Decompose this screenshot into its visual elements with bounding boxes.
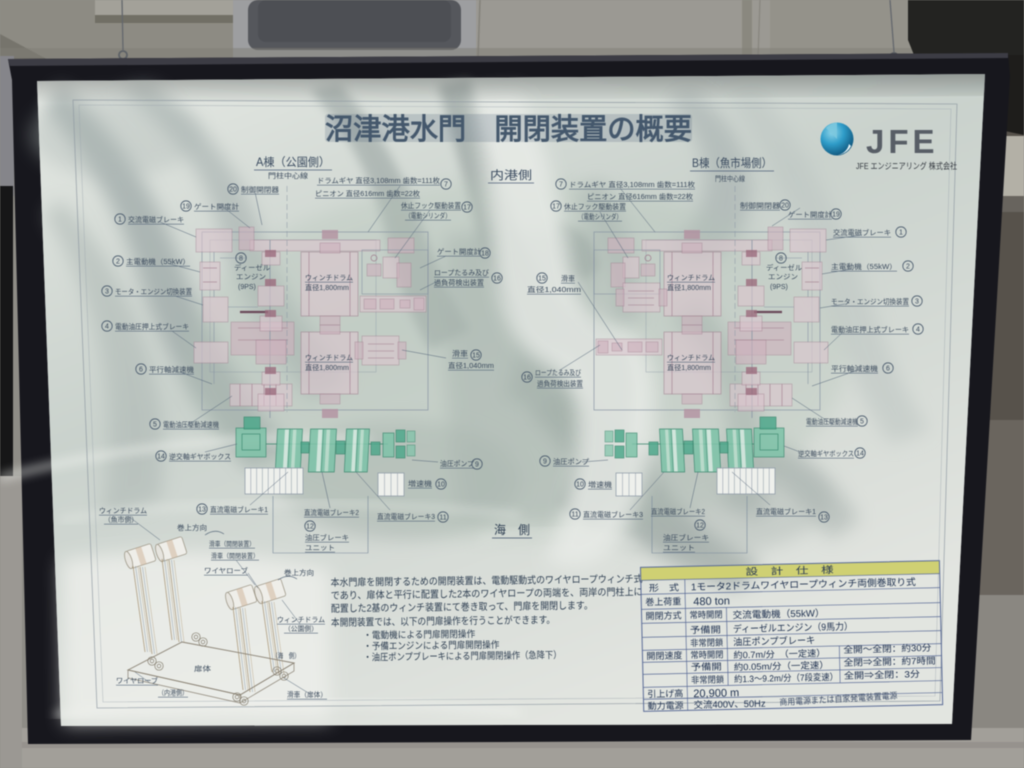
svg-text:2: 2: [906, 264, 910, 271]
svg-text:JFE エンジニアリング 株式会社: JFE エンジニアリング 株式会社: [856, 161, 957, 171]
svg-text:油圧ポンプ: 油圧ポンプ: [553, 457, 589, 466]
svg-text:交流電磁ブレーキ: 交流電磁ブレーキ: [128, 215, 184, 224]
svg-text:油圧ポンプ: 油圧ポンプ: [440, 459, 474, 468]
svg-text:ドラムギヤ 直径3,108mm 歯数=111枚: ドラムギヤ 直径3,108mm 歯数=111枚: [317, 176, 440, 185]
svg-text:ディーゼル: ディーゼル: [234, 263, 270, 272]
svg-text:6: 6: [139, 367, 143, 374]
svg-text:開閉速度: 開閉速度: [646, 649, 682, 661]
svg-text:巻上荷重: 巻上荷重: [645, 595, 681, 607]
svg-text:ユニット: ユニット: [663, 545, 695, 552]
svg-text:JFE: JFE: [866, 123, 939, 160]
svg-text:ディーゼル: ディーゼル: [766, 263, 802, 272]
svg-text:設 計 仕 様: 設 計 仕 様: [745, 564, 834, 578]
svg-text:形 式: 形 式: [649, 582, 679, 594]
svg-text:油圧ブレーキ: 油圧ブレーキ: [305, 533, 349, 542]
svg-text:15: 15: [472, 353, 480, 360]
svg-text:直流電磁ブレーキ3: 直流電磁ブレーキ3: [583, 510, 643, 519]
svg-text:ウィンチドラム: ウィンチドラム: [305, 274, 353, 282]
svg-text:滑車: 滑車: [452, 349, 468, 358]
svg-text:直径1,040mm: 直径1,040mm: [527, 285, 581, 294]
svg-text:予備開: 予備開: [691, 661, 722, 673]
svg-text:平行軸減速機: 平行軸減速機: [831, 364, 878, 373]
svg-text:非常閉鎖: 非常閉鎖: [691, 674, 724, 686]
svg-text:19: 19: [182, 204, 190, 211]
svg-text:開閉方式: 開閉方式: [645, 609, 681, 621]
svg-text:A棟（公園側）: A棟（公園側）: [256, 155, 330, 169]
svg-text:制御開閉器: 制御開閉器: [241, 185, 279, 194]
svg-text:制御開閉器: 制御開閉器: [740, 201, 780, 210]
svg-text:4: 4: [105, 324, 109, 331]
svg-text:増速機: 増速機: [588, 480, 612, 489]
svg-text:（電動シリンダ）: （電動シリンダ）: [578, 212, 622, 221]
svg-text:15: 15: [538, 276, 546, 283]
svg-text:直流電磁ブレーキ2: 直流電磁ブレーキ2: [304, 508, 359, 517]
svg-text:（公園側）: （公園側）: [284, 624, 318, 633]
svg-text:直流電磁ブレーキ1: 直流電磁ブレーキ1: [210, 505, 268, 514]
svg-text:ドラムギヤ 直径3,108mm 歯数=111枚: ドラムギヤ 直径3,108mm 歯数=111枚: [569, 180, 695, 189]
svg-text:ロープたるみ及び: ロープたるみ及び: [535, 369, 581, 377]
svg-text:3: 3: [915, 299, 919, 306]
svg-text:（内港側）: （内港側）: [158, 688, 188, 697]
svg-text:予備開: 予備開: [690, 624, 721, 636]
svg-text:20: 20: [229, 187, 237, 194]
svg-text:門柱中心線: 門柱中心線: [715, 174, 745, 183]
svg-text:16: 16: [523, 375, 531, 382]
svg-text:休止フック駆動装置: 休止フック駆動装置: [401, 201, 461, 210]
svg-text:14: 14: [856, 451, 864, 458]
svg-text:10: 10: [576, 482, 584, 489]
svg-text:主電動機（55kW）: 主電動機（55kW）: [126, 257, 190, 266]
svg-text:ウィンチドラム: ウィンチドラム: [99, 507, 147, 515]
svg-text:交流電動機（55kW）: 交流電動機（55kW）: [732, 607, 824, 621]
svg-text:内港側: 内港側: [490, 168, 532, 182]
svg-text:休止フック駆動装置: 休止フック駆動装置: [564, 202, 626, 211]
svg-text:12: 12: [696, 523, 704, 530]
svg-text:13: 13: [820, 515, 828, 522]
svg-text:過負荷検出装置: 過負荷検出装置: [537, 379, 583, 388]
svg-text:4: 4: [916, 327, 920, 334]
svg-text:5: 5: [153, 422, 157, 429]
svg-text:モータ・エンジン切換装置: モータ・エンジン切換装置: [831, 297, 909, 306]
svg-text:(9PS): (9PS): [770, 284, 788, 291]
svg-text:ゲート開度計: ゲート開度計: [437, 247, 481, 256]
svg-text:18: 18: [481, 251, 489, 258]
svg-text:ウィンチドラム: ウィンチドラム: [305, 354, 353, 362]
svg-text:全閉⇒全開：約7時間: 全閉⇒全開：約7時間: [844, 655, 936, 668]
svg-text:交流電磁ブレーキ: 交流電磁ブレーキ: [833, 228, 891, 237]
svg-text:逆交軸ギヤボックス: 逆交軸ギヤボックス: [798, 449, 854, 458]
svg-text:（海 側）: （海 側）: [272, 651, 300, 660]
svg-text:ウィンチドラム: ウィンチドラム: [277, 616, 325, 624]
svg-text:12: 12: [306, 524, 314, 531]
svg-text:直径1,800mm: 直径1,800mm: [667, 283, 711, 292]
svg-text:門柱中心線: 門柱中心線: [268, 171, 308, 180]
svg-text:海 側: 海 側: [494, 522, 530, 537]
svg-text:9: 9: [543, 459, 547, 466]
svg-text:巻上方向: 巻上方向: [284, 568, 314, 577]
svg-text:全開～全閉：約30分: 全開～全閉：約30分: [843, 642, 931, 655]
svg-text:沼津港水門 開閉装置の概要: 沼津港水門 開閉装置の概要: [325, 113, 692, 146]
svg-text:17: 17: [463, 205, 471, 212]
svg-text:ピニオン 直径616mm 歯数=22枚: ピニオン 直径616mm 歯数=22枚: [587, 192, 693, 201]
svg-text:1: 1: [899, 230, 903, 237]
svg-text:電動油圧押上式ブレーキ: 電動油圧押上式ブレーキ: [115, 322, 189, 331]
svg-text:油圧ポンプブレーキ: 油圧ポンプブレーキ: [733, 634, 815, 648]
svg-text:17: 17: [552, 204, 560, 211]
svg-text:直径1,040mm: 直径1,040mm: [448, 361, 494, 370]
svg-text:ロープたるみ及び: ロープたるみ及び: [434, 269, 489, 277]
svg-text:20,900 m: 20,900 m: [693, 687, 739, 700]
svg-text:ユニット: ユニット: [305, 545, 335, 552]
svg-text:B棟（魚市場側）: B棟（魚市場側）: [692, 156, 772, 170]
svg-text:直流電磁ブレーキ2: 直流電磁ブレーキ2: [651, 507, 705, 516]
svg-text:全開⇒全閉：3分: 全開⇒全閉：3分: [844, 668, 920, 681]
svg-text:交流400V、50Hz: 交流400V、50Hz: [693, 698, 765, 712]
svg-text:11: 11: [571, 512, 578, 519]
svg-text:非常閉鎖: 非常閉鎖: [690, 637, 723, 649]
svg-text:電動油圧駆動減速機: 電動油圧駆動減速機: [163, 420, 219, 429]
svg-text:19: 19: [832, 212, 840, 219]
svg-text:引上げ高: 引上げ高: [647, 687, 683, 699]
svg-text:6: 6: [886, 366, 890, 373]
svg-text:動力電源: 動力電源: [647, 699, 683, 711]
svg-text:16: 16: [493, 276, 501, 283]
svg-text:ピニオン 直径616mm 歯数=22枚: ピニオン 直径616mm 歯数=22枚: [315, 189, 420, 198]
svg-text:主電動機（55kW）: 主電動機（55kW）: [831, 262, 897, 271]
svg-text:・油圧ポンプブレーキによる門扉開閉操作（急降下）: ・油圧ポンプブレーキによる門扉開閉操作（急降下）: [363, 649, 561, 663]
svg-text:20: 20: [781, 203, 789, 210]
svg-text:扉体: 扉体: [194, 664, 211, 673]
svg-text:滑車: 滑車: [561, 274, 575, 283]
svg-text:7: 7: [559, 182, 563, 189]
svg-text:エンジン: エンジン: [768, 274, 798, 281]
svg-text:常時開閉: 常時開閉: [690, 649, 723, 661]
svg-text:滑車（開閉装置）: 滑車（開閉装置）: [209, 539, 255, 548]
svg-text:ワイヤローブ: ワイヤローブ: [116, 676, 158, 685]
svg-text:5: 5: [860, 419, 864, 426]
svg-text:エンジン: エンジン: [236, 274, 266, 281]
svg-text:8: 8: [239, 256, 243, 263]
svg-text:平行軸減速機: 平行軸減速機: [149, 365, 194, 374]
svg-text:モータ・エンジン切換装置: モータ・エンジン切換装置: [115, 287, 192, 296]
svg-text:過負荷検出装置: 過負荷検出装置: [434, 278, 484, 287]
svg-text:電動油圧押上式ブレーキ: 電動油圧押上式ブレーキ: [831, 325, 909, 334]
svg-text:直径1,800mm: 直径1,800mm: [305, 363, 349, 372]
svg-text:13: 13: [198, 507, 206, 514]
svg-text:ウィンチドラム: ウィンチドラム: [667, 354, 715, 362]
svg-text:増速機: 増速機: [408, 479, 432, 488]
svg-text:巻上方向: 巻上方向: [177, 523, 207, 532]
svg-text:9: 9: [475, 462, 479, 469]
svg-text:滑車（開閉装置）: 滑車（開閉装置）: [211, 551, 259, 560]
svg-text:直流電磁ブレーキ1: 直流電磁ブレーキ1: [756, 507, 816, 516]
svg-text:480 ton: 480 ton: [693, 595, 730, 608]
svg-text:14: 14: [157, 454, 165, 461]
svg-text:逆交軸ギヤボックス: 逆交軸ギヤボックス: [169, 452, 231, 461]
svg-text:7: 7: [444, 182, 448, 189]
svg-text:11: 11: [439, 515, 446, 522]
svg-text:直径1,800mm: 直径1,800mm: [667, 363, 711, 372]
svg-text:2: 2: [116, 259, 120, 266]
svg-text:直径1,800mm: 直径1,800mm: [305, 283, 349, 292]
svg-text:8: 8: [779, 256, 783, 263]
svg-text:ゲート開度計: ゲート開度計: [194, 202, 239, 211]
svg-text:常時開閉: 常時開閉: [689, 609, 722, 621]
svg-text:電動油圧駆動減速機: 電動油圧駆動減速機: [806, 417, 858, 426]
svg-text:10: 10: [437, 482, 445, 489]
svg-text:直流電磁ブレーキ3: 直流電磁ブレーキ3: [377, 512, 435, 521]
svg-text:1: 1: [118, 217, 122, 224]
svg-text:約0.05m/分（一定速）: 約0.05m/分（一定速）: [734, 659, 829, 672]
svg-text:滑車（扉体）: 滑車（扉体）: [287, 690, 327, 699]
svg-text:ウィンチドラム: ウィンチドラム: [667, 274, 715, 282]
svg-text:(9PS): (9PS): [238, 284, 256, 291]
svg-text:3: 3: [105, 289, 109, 296]
svg-text:約0.7m/分 （一定速）: 約0.7m/分 （一定速）: [733, 647, 825, 660]
svg-text:油圧ブレーキ: 油圧ブレーキ: [663, 533, 709, 542]
